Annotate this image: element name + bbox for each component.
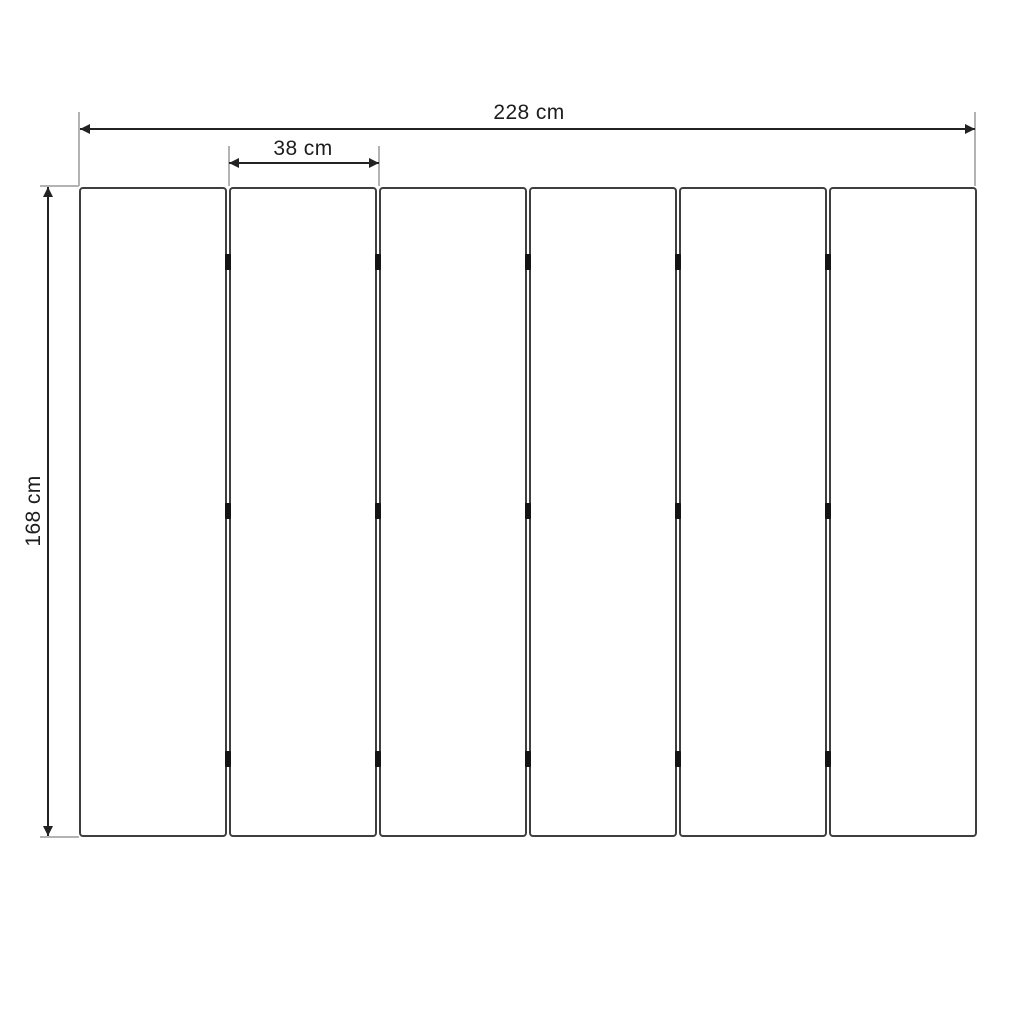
hinge-connector [825,503,831,519]
panel-6 [829,187,977,837]
hinge-connector [825,751,831,767]
arrow-down-icon [43,826,53,836]
hinge-connector [375,254,381,270]
panel-width-label: 38 cm [273,137,332,161]
panel-4 [529,187,677,837]
hinge-connector [375,503,381,519]
total-width-dimension-line [80,128,975,130]
height-dimension-line [47,187,49,836]
total-width-label: 228 cm [493,101,564,125]
panel-5 [679,187,827,837]
diagram-canvas: 228 cm 38 cm 168 cm [0,0,1024,1024]
hinge-connector [525,254,531,270]
height-extension-line-bottom [40,836,79,838]
hinge-connector [225,503,231,519]
arrow-right-icon [965,124,975,134]
hinge-connector [825,254,831,270]
hinge-connector [525,751,531,767]
hinge-connector [375,751,381,767]
hinge-connector [675,751,681,767]
arrow-left-icon [80,124,90,134]
hinge-connector [675,503,681,519]
arrow-left-icon [229,158,239,168]
panel-2 [229,187,377,837]
hinge-connector [225,751,231,767]
arrow-right-icon [369,158,379,168]
panel-3 [379,187,527,837]
hinge-connector [525,503,531,519]
panel-width-dimension-line [229,162,379,164]
hinge-connector [675,254,681,270]
panel-1 [79,187,227,837]
arrow-up-icon [43,187,53,197]
height-label: 168 cm [22,475,46,546]
hinge-connector [225,254,231,270]
